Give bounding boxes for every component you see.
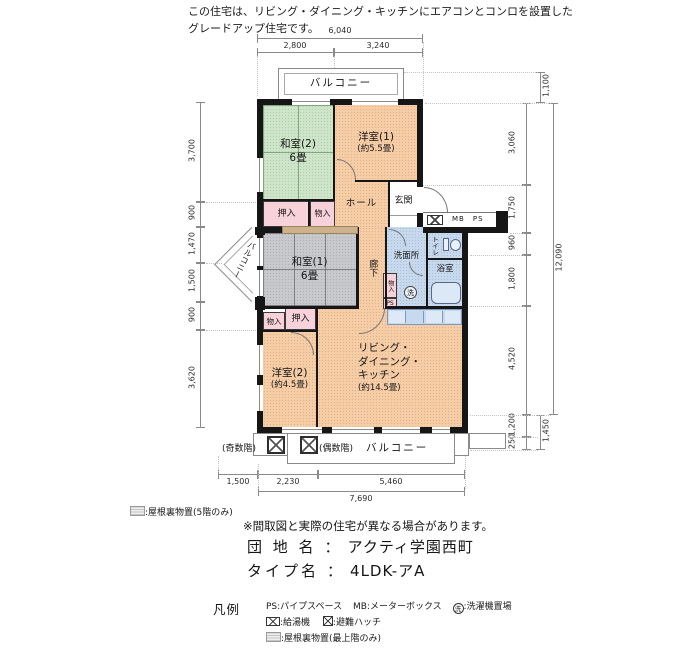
extension-line <box>470 415 551 416</box>
hall: ホール <box>335 180 388 227</box>
type-name-label: タイプ名 <box>247 562 319 580</box>
escape-hatch-icon <box>267 436 285 454</box>
mbps-label: MB PS <box>452 214 484 224</box>
dim-line-right-3 <box>526 233 527 255</box>
dim-line-left-4 <box>200 263 201 302</box>
toilet-label: トイレ <box>430 236 438 256</box>
legend-hatch: :避難ハッチ <box>333 618 381 628</box>
wall-segment <box>385 227 387 309</box>
wall-segment <box>255 297 265 310</box>
danchi-name-label: 団 地 名 <box>247 538 317 556</box>
extension-line <box>206 202 256 203</box>
closet-oshiire-upper-label: 押入 <box>277 209 295 220</box>
genkan-step-line <box>390 215 417 216</box>
wall-segment <box>263 199 335 201</box>
escape-hatch-icon <box>300 436 318 454</box>
dim-label-top-2: 3,240 <box>338 41 418 50</box>
closet-monoire-small-label: 物入 <box>386 280 394 292</box>
legend-title: 凡例 <box>213 599 240 618</box>
room-ldk: リビング・ ダイニング・ キッチン (約14.5畳) <box>318 308 462 427</box>
dim-line-right-7 <box>526 437 527 450</box>
wall-segment <box>308 201 310 227</box>
genkan: 玄関 <box>390 182 417 227</box>
dim-line-left-1 <box>200 102 201 202</box>
legend-attic: :屋根裏物置(最上階のみ) <box>281 634 381 644</box>
room-ldk-size: (約14.5畳) <box>358 383 401 393</box>
hall-label: ホール <box>346 198 378 209</box>
dim-label-left-1: 3,700 <box>188 121 197 181</box>
dim-line-left-2 <box>200 202 201 227</box>
washing-machine-label: 洗 <box>407 288 414 298</box>
extension-line <box>423 185 524 186</box>
room-yoshitsu1-name: 洋室(1) <box>358 131 394 145</box>
window <box>257 345 263 375</box>
disclaimer: ※間取図と実際の住宅が異なる場合があります。 <box>243 518 493 534</box>
extension-line <box>470 450 538 451</box>
dim-line-right-4 <box>526 255 527 306</box>
room-yoshitsu1-size: (約5.5畳) <box>357 144 394 154</box>
room-ldk-line3: キッチン <box>358 369 400 383</box>
legend-line-1: PS:パイプスペース MB:メーターボックス 洗:洗濯機置場 <box>266 600 512 616</box>
window <box>257 385 263 411</box>
closet-oshiire-upper: 押入 <box>263 201 310 227</box>
extension-line <box>404 72 538 73</box>
legend-heater-icon <box>266 617 280 626</box>
dim-line-left-5 <box>200 302 201 330</box>
colon: ： <box>325 538 340 556</box>
window <box>257 158 263 192</box>
room-washitsu1-name: 和室(1) <box>292 256 328 270</box>
colon: ： <box>327 562 342 580</box>
dim-label-right-1: 3,060 <box>508 113 517 173</box>
kitchen-sink-icon <box>389 311 406 323</box>
legend-mb: MB:メーターボックス <box>353 602 442 612</box>
dim-line-right-2 <box>526 185 527 233</box>
bathtub-icon <box>431 282 461 304</box>
dim-label-right-4: 1,800 <box>508 249 517 309</box>
danchi-name-value: アクティ学園西町 <box>348 538 474 556</box>
legend-block: PS:パイプスペース MB:メーターボックス 洗:洗濯機置場 :給湯機 :避難ハ… <box>266 600 512 647</box>
extension-line <box>206 330 256 331</box>
dim-label-bottom-3: 5,460 <box>351 477 431 486</box>
closet-monoire-lower-label: 物入 <box>267 317 282 326</box>
balcony-bottom-right <box>469 433 506 449</box>
water-heater-icon <box>427 215 443 225</box>
closet-monoire-upper: 物入 <box>310 201 335 227</box>
closet-oshiire-lower-label: 押入 <box>291 314 309 325</box>
attic-hatch-icon <box>130 506 145 516</box>
extension-line <box>465 452 466 489</box>
corridor-label: 廊下 <box>367 259 378 277</box>
dim-label-top-total: 6,040 <box>300 26 380 35</box>
dim-line-right-5 <box>526 306 527 415</box>
balcony-bottom-label: バルコニー <box>366 440 428 455</box>
entrance-door-arc <box>424 187 448 213</box>
washing-machine-icon: 洗 <box>404 286 417 299</box>
kitchen-counter-cell <box>445 311 461 323</box>
type-name-row: タイプ名：4LDK-アA <box>247 560 425 581</box>
kitchen-stove-icon <box>426 311 443 323</box>
balcony-top-label: バルコニー <box>310 77 372 91</box>
senmenjo-label: 洗面所 <box>394 251 420 261</box>
dim-label-right-total: 12,090 <box>555 228 564 288</box>
dim-line-right-6 <box>526 415 527 437</box>
dim-label-left-5: 900 <box>188 285 197 345</box>
header-note-line2: グレードアップ住宅です。 <box>188 21 618 38</box>
corridor: 廊下 <box>359 227 385 308</box>
toilet-bowl-icon <box>450 239 461 251</box>
extension-line <box>257 56 258 96</box>
extension-line <box>425 103 551 104</box>
dim-label-right-7: 250 <box>508 412 517 472</box>
attic-note-5f: :屋根裏物置(5階のみ) <box>130 505 233 518</box>
wall-segment <box>263 330 316 332</box>
wall-segment <box>388 182 390 227</box>
balcony-odd-floors-label: (奇数階) <box>222 441 256 454</box>
entrance-opening <box>417 187 423 213</box>
room-washitsu2-name: 和室(2) <box>280 138 316 152</box>
legend-attic-icon <box>266 632 281 642</box>
room-ldk-line2: ダイニング・ <box>358 356 421 370</box>
dim-label-right-top: 1,100 <box>542 56 551 116</box>
wall-segment <box>356 233 359 308</box>
window <box>352 99 398 105</box>
dim-line-bottom-2 <box>258 474 318 475</box>
dim-line-bottom-total <box>258 491 465 492</box>
room-washitsu2: 和室(2) 6畳 <box>263 105 333 199</box>
legend-line-2: :給湯機 :避難ハッチ <box>266 616 512 632</box>
room-washitsu1-size: 6畳 <box>301 270 318 284</box>
room-ldk-line1: リビング・ <box>358 342 411 356</box>
balcony-top-inner: バルコニー <box>284 73 398 95</box>
legend-ps: PS:パイプスペース <box>266 602 342 612</box>
dim-line-left-3 <box>200 227 201 263</box>
extension-line <box>470 255 524 256</box>
wall-segment <box>426 233 428 308</box>
dim-line-bottom-1 <box>218 474 258 475</box>
dim-label-top-1: 2,800 <box>255 41 335 50</box>
wall-segment <box>316 308 318 427</box>
genkan-label: 玄関 <box>394 196 412 207</box>
toilet-tank-icon <box>443 238 449 251</box>
room-yoshitsu2-size: (約4.5畳) <box>271 380 308 390</box>
wall-segment <box>263 306 359 309</box>
attic-note-5f-text: :屋根裏物置(5階のみ) <box>145 508 233 518</box>
closet-oshiire-lower: 押入 <box>285 308 316 330</box>
wall-segment <box>496 211 508 233</box>
tokonoma-strip <box>282 226 358 234</box>
legend-line-3: :屋根裏物置(最上階のみ) <box>266 632 512 648</box>
type-name-value: 4LDK-アA <box>350 562 425 580</box>
wall-segment <box>355 180 417 182</box>
legend-washing-icon: 洗 <box>453 603 464 614</box>
dim-label-right-bottom: 1,450 <box>542 401 551 461</box>
room-washitsu2-size: 6畳 <box>289 152 306 166</box>
legend-laundry: :洗濯機置場 <box>464 602 512 612</box>
dim-line-bottom-3 <box>318 474 465 475</box>
legend-heater: :給湯機 <box>280 618 310 628</box>
dim-line-top-1 <box>257 52 334 53</box>
balcony-even-floors-label: (偶数階) <box>319 441 353 454</box>
extension-line <box>470 306 524 307</box>
extension-line <box>423 42 424 96</box>
wall-segment <box>428 258 462 260</box>
wall-segment <box>333 105 335 201</box>
dim-line-left-6 <box>200 330 201 428</box>
dim-line-top-2 <box>334 52 423 53</box>
extension-line <box>258 464 259 489</box>
extension-line <box>508 437 538 438</box>
kitchen-counter-cell <box>408 311 425 323</box>
closet-monoire-lower: 物入 <box>263 312 285 330</box>
legend-hatch-icon <box>323 616 333 626</box>
kitchen-counter <box>387 309 462 325</box>
header-note-line1: この住宅は、リビング・ダイニング・キッチンにエアコンとコンロを設置した <box>188 4 618 21</box>
dim-label-left-6: 3,620 <box>188 348 197 408</box>
closet-monoire-upper-label: 物入 <box>315 209 331 219</box>
room-yoshitsu2-name: 洋室(2) <box>272 367 308 381</box>
header-note: この住宅は、リビング・ダイニング・キッチンにエアコンとコンロを設置した グレード… <box>188 4 618 37</box>
dim-label-right-5: 4,520 <box>508 329 517 389</box>
dim-label-bottom-total: 7,690 <box>321 494 401 503</box>
extension-line <box>218 456 219 472</box>
dim-label-bottom-2: 2,230 <box>248 477 328 486</box>
floorplan-page: { "header": { "line1": "この住宅は、リビング・ダイニング… <box>0 0 700 650</box>
danchi-name-row: 団 地 名：アクティ学園西町 <box>247 536 474 557</box>
extension-line <box>510 233 524 234</box>
dim-line-top-total <box>257 38 423 39</box>
dim-line-right-1 <box>526 103 527 185</box>
bathroom-label: 浴室 <box>436 264 453 274</box>
window <box>292 99 330 105</box>
